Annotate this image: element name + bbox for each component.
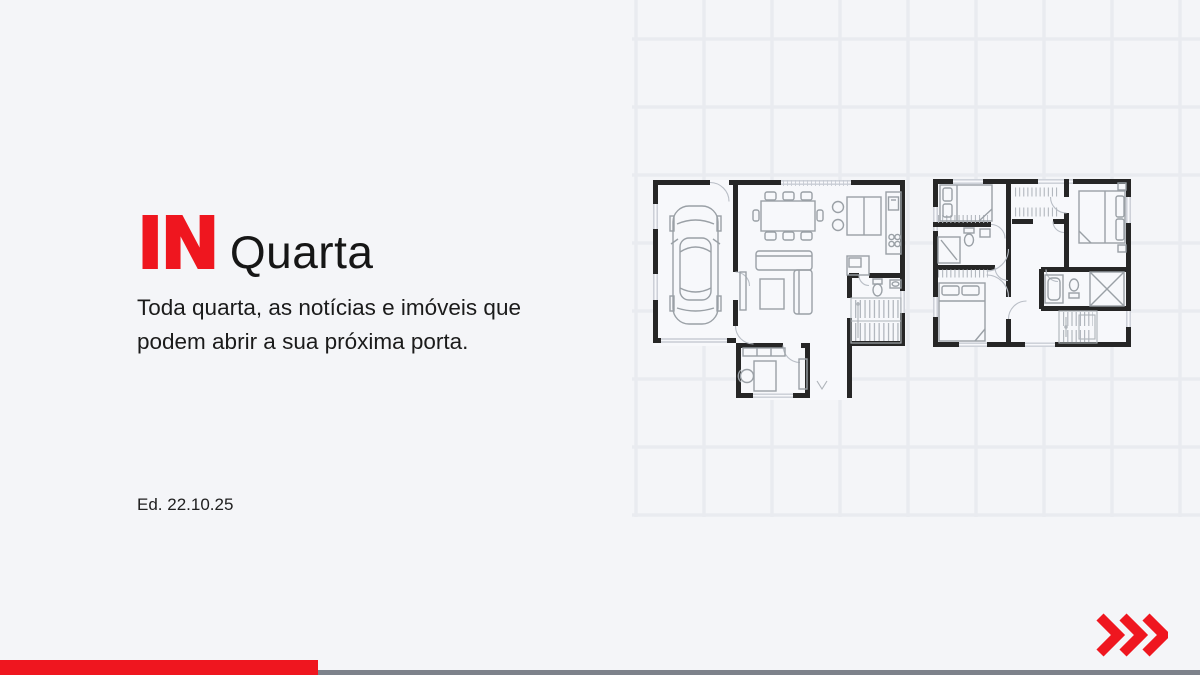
upper-floor-plan	[933, 179, 1131, 347]
triple-chevron-right-icon	[1096, 613, 1168, 657]
headline-block: IN Quarta Toda quarta, as notícias e imó…	[137, 210, 567, 359]
logo-quarta: Quarta	[230, 229, 374, 275]
floor-slab	[933, 179, 1131, 347]
edition-label: Ed. 22.10.25	[137, 495, 233, 515]
newsletter-banner: { "meta": { "background_color": "#f4f5f8…	[0, 0, 1200, 675]
gray-baseline-bar	[318, 670, 1200, 675]
red-accent-bar	[0, 660, 318, 675]
logo: IN Quarta	[137, 210, 567, 277]
tagline: Toda quarta, as notícias e imóveis que p…	[137, 291, 567, 359]
tagline-line2: podem abrir a sua próxima porta.	[137, 329, 468, 354]
logo-in: IN	[137, 210, 217, 277]
ground-floor-plan	[653, 180, 905, 400]
tagline-line1: Toda quarta, as notícias e imóveis que	[137, 295, 521, 320]
floor-slab	[653, 180, 905, 400]
